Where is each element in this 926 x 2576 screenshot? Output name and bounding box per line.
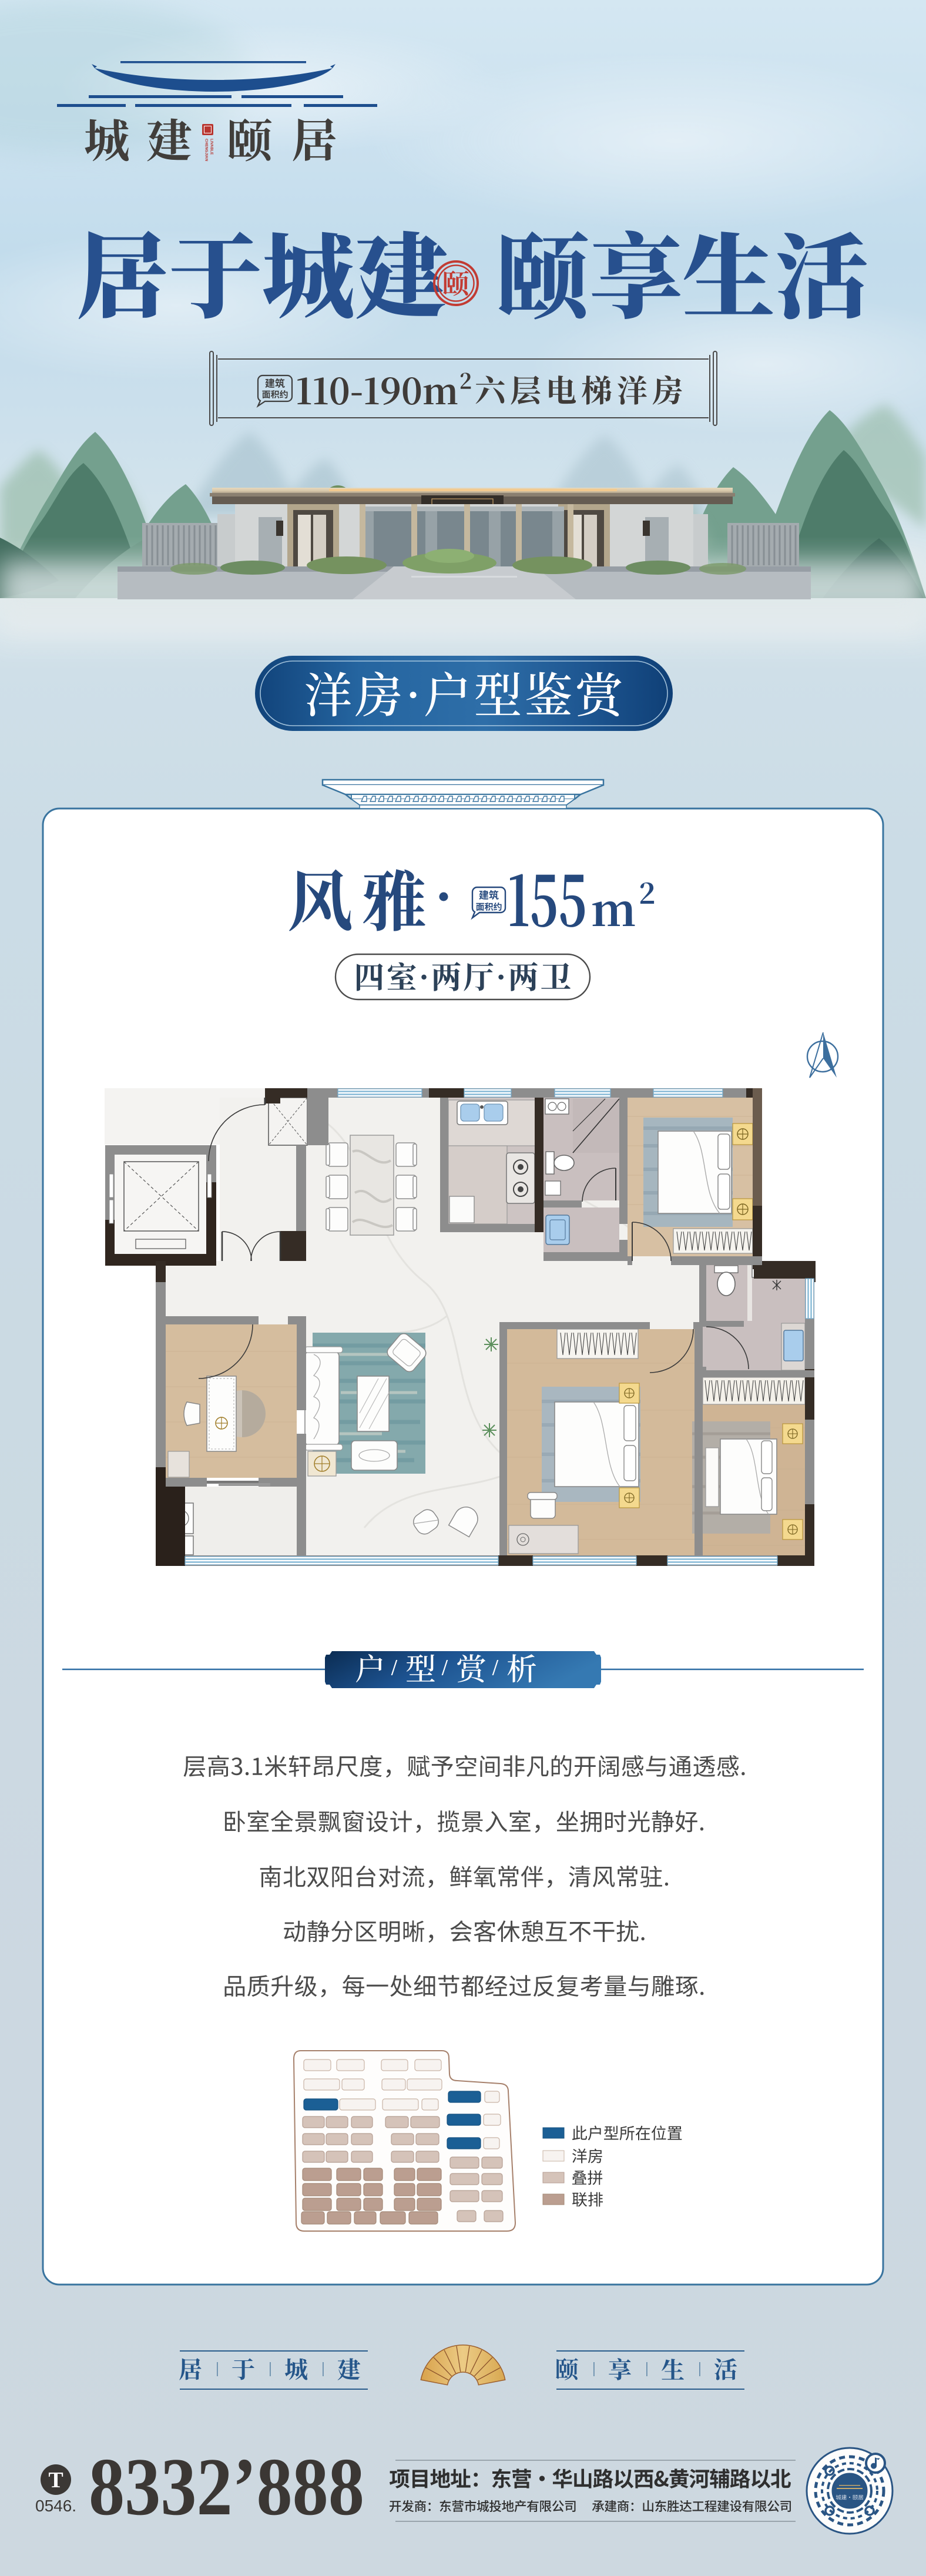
svg-text:8332ʼ888: 8332ʼ888: [89, 2441, 364, 2533]
svg-text:0546.: 0546.: [35, 2497, 76, 2515]
svg-text:CHENGJIAN: CHENGJIAN: [204, 139, 209, 162]
svg-text:T: T: [48, 2468, 63, 2493]
svg-text:LIVABLE: LIVABLE: [210, 139, 214, 155]
